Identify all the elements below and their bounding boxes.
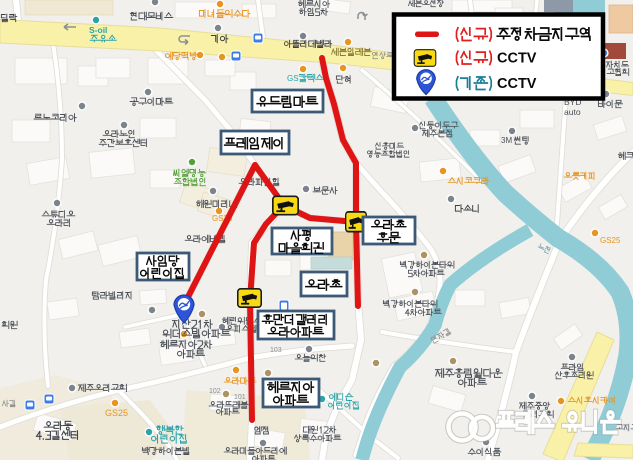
svg-text:GS25: GS25 (105, 408, 128, 418)
svg-text:101: 101 (234, 394, 246, 401)
svg-text:GS: GS (287, 74, 299, 83)
svg-text:GS25: GS25 (600, 236, 621, 245)
svg-text:102: 102 (209, 388, 221, 395)
svg-text:103: 103 (270, 347, 282, 354)
svg-text:3M: 3M (501, 136, 512, 145)
svg-text:CCTV: CCTV (497, 76, 537, 92)
svg-text:auto: auto (564, 107, 581, 117)
svg-text:CCTV: CCTV (497, 51, 537, 67)
svg-text:S-oil: S-oil (89, 25, 107, 35)
